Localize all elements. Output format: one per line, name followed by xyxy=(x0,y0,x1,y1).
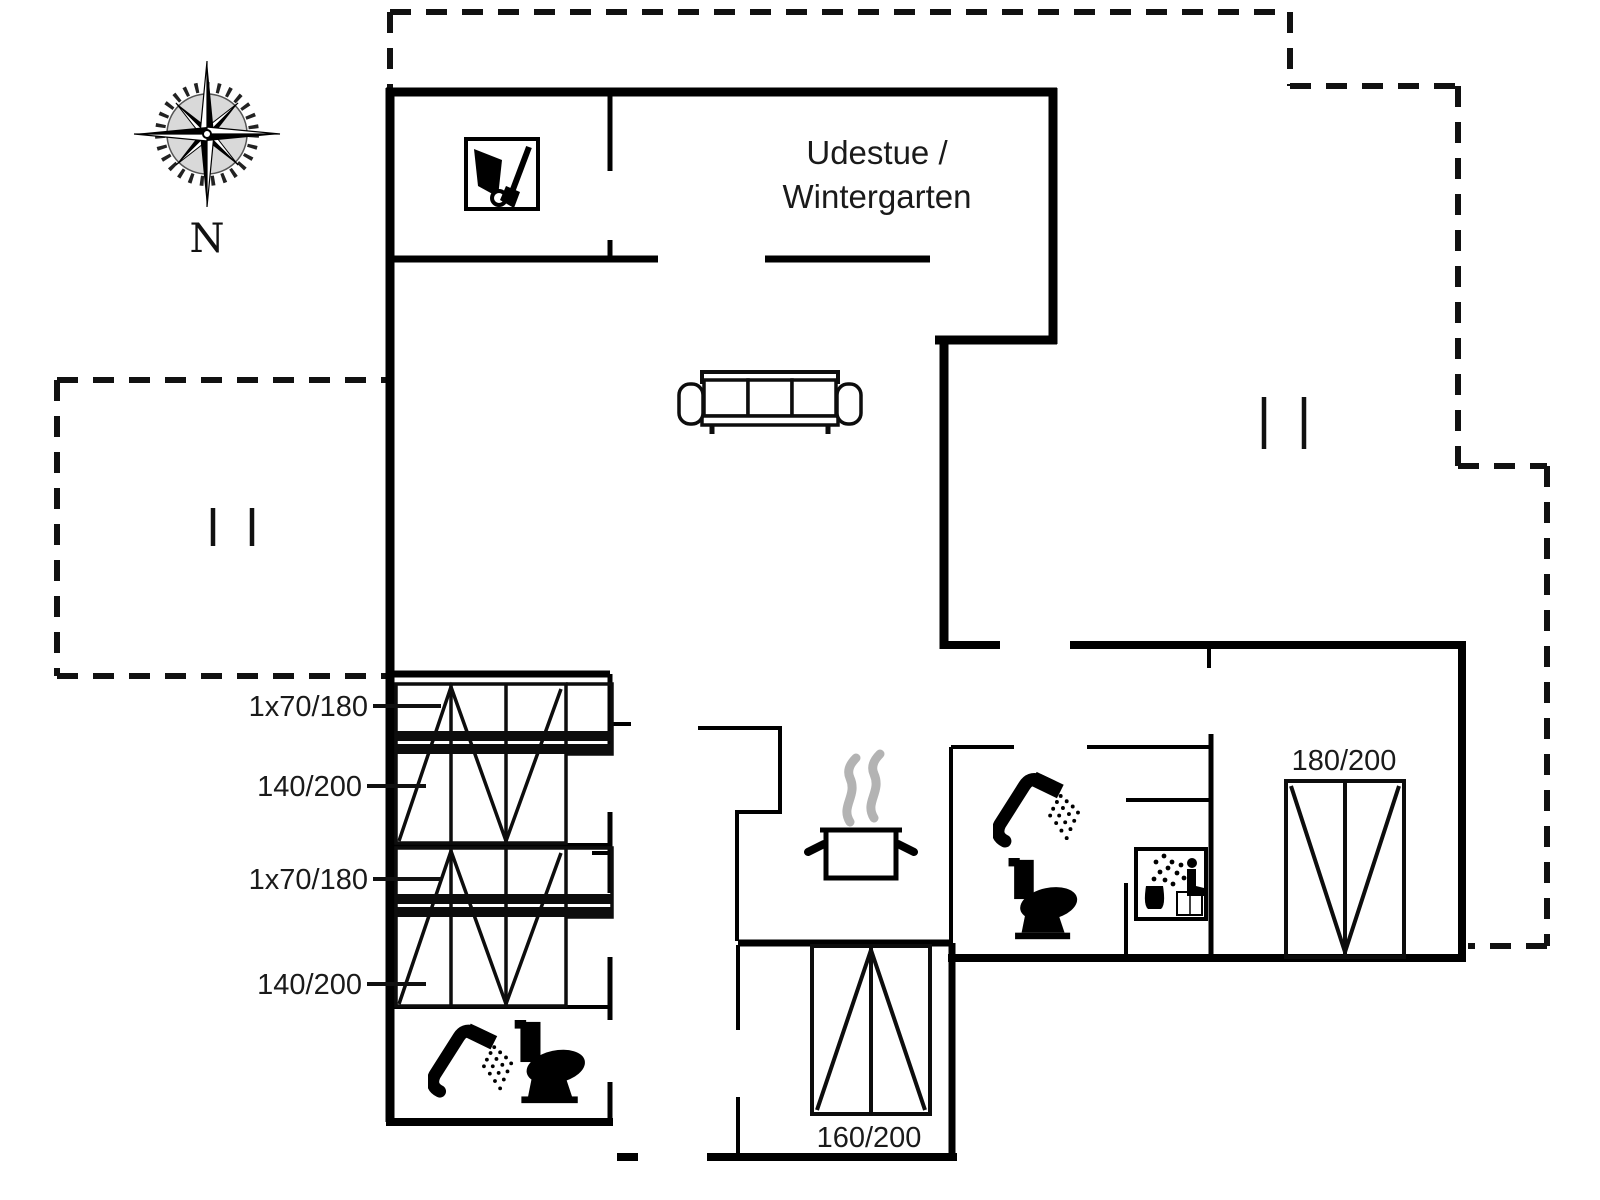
floorplan-canvas: N Udestue / Wintergarten xyxy=(0,0,1600,1200)
steam-icon xyxy=(847,754,880,822)
bed-label-180-200: 180/200 xyxy=(1292,745,1397,777)
terrace-dashed-outline xyxy=(57,12,1547,946)
wheelbarrow-icon xyxy=(466,139,538,209)
compass-north-label: N xyxy=(190,216,225,262)
shower-icon xyxy=(998,772,1080,841)
double-bed-symbol-180 xyxy=(1286,781,1404,957)
toilet-icon xyxy=(515,1020,588,1103)
walls-outer xyxy=(386,88,1466,1160)
compass-rose-icon xyxy=(134,61,280,207)
sofa-icon xyxy=(679,372,861,434)
floor-plan-svg: N Udestue / Wintergarten xyxy=(0,0,1600,1200)
cooking-pot-icon xyxy=(808,754,914,878)
bed-label-bunk1-bottom: 140/200 xyxy=(257,771,362,803)
double-bed-symbol-160 xyxy=(812,946,930,1114)
bed-label-160-200: 160/200 xyxy=(817,1122,922,1154)
bed-label-bunk1-top: 1x70/180 xyxy=(249,691,368,723)
bed-label-bunk2-top: 1x70/180 xyxy=(249,864,368,896)
room-label-line2: Wintergarten xyxy=(783,178,972,215)
sauna-icon xyxy=(1136,849,1206,919)
toilet-icon xyxy=(1009,858,1081,939)
room-label-line1: Udestue / xyxy=(806,134,948,171)
bunk-bed-symbol-2 xyxy=(396,848,612,1006)
shower-icon xyxy=(433,1024,513,1092)
bed-label-bunk2-bottom: 140/200 xyxy=(257,969,362,1001)
walls-inner xyxy=(390,92,1211,1157)
room-label-udestue: Udestue / Wintergarten xyxy=(783,134,972,215)
